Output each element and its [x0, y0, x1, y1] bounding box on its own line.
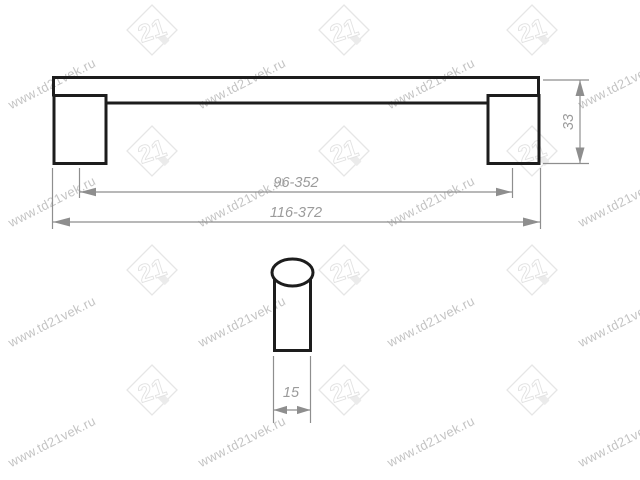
handle-bar-top	[54, 78, 539, 96]
technical-drawing: 96-352 116-372 33 15	[0, 0, 640, 480]
overall-length-label: 116-372	[270, 205, 322, 221]
side-bar-section	[272, 259, 313, 286]
page: www.td21vek.ruwww.td21vek.ruwww.td21vek.…	[0, 0, 640, 480]
handle-right-foot	[488, 96, 539, 164]
handle-left-foot	[54, 96, 106, 164]
hole-spacing-label: 96-352	[273, 175, 318, 191]
dimension-lines	[53, 80, 590, 423]
dimension-labels: 96-352 116-372 33 15	[270, 114, 577, 401]
front-view	[54, 78, 540, 164]
dimension-arrows	[53, 80, 585, 414]
side-view	[272, 259, 313, 351]
diameter-label: 15	[283, 385, 300, 401]
height-label: 33	[561, 114, 577, 130]
